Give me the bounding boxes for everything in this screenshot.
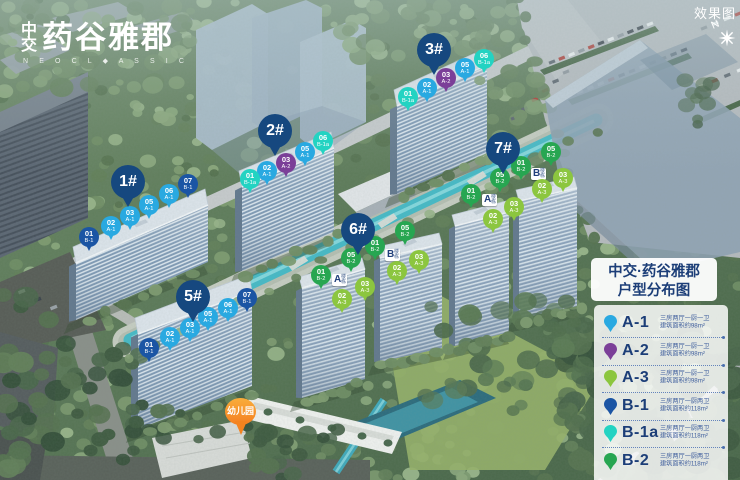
svg-text:N: N bbox=[709, 18, 721, 32]
